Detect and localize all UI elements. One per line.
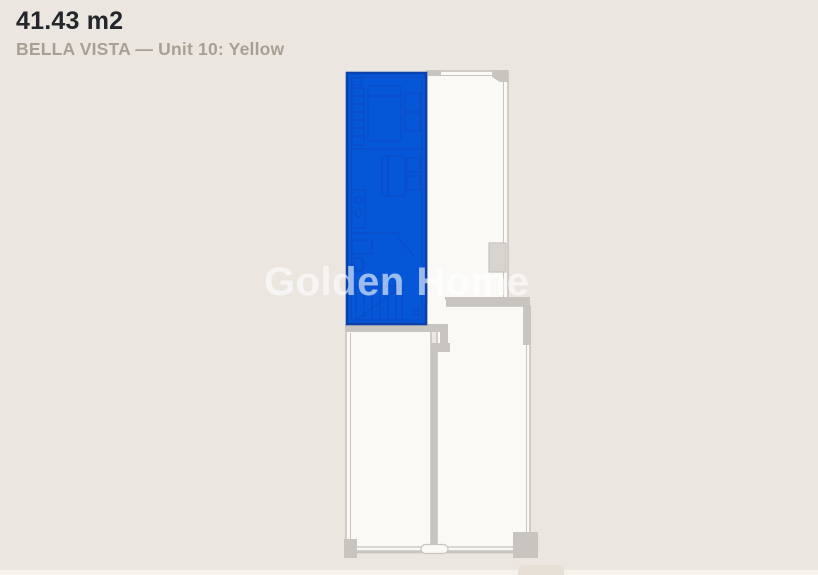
unit-10-highlighted[interactable] [347,73,426,324]
wall-segment [427,70,441,76]
floorplan-svg [0,0,818,575]
door-handle [421,545,448,554]
unit-upper-right[interactable] [427,70,508,302]
partial-bottom-element [518,565,564,575]
bottom-strip [0,570,818,575]
wall-segment [523,306,531,345]
wall-pier [489,243,506,272]
unit-lower-left[interactable] [346,331,431,551]
unit-lower-right[interactable] [437,306,531,551]
